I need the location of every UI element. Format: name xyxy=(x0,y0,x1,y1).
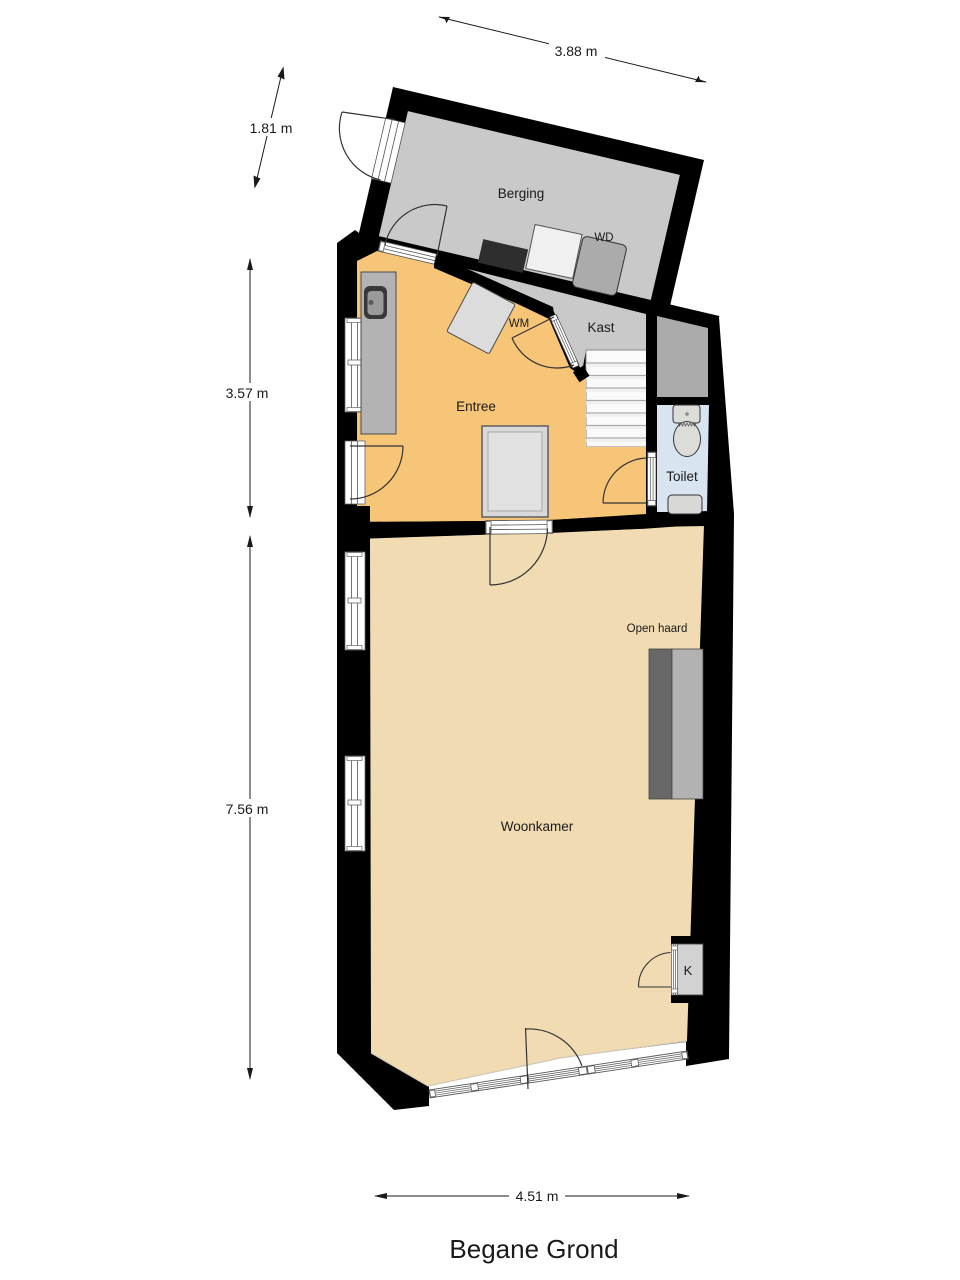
svg-text:Woonkamer: Woonkamer xyxy=(501,819,574,834)
svg-text:Begane Grond: Begane Grond xyxy=(449,1234,618,1264)
svg-text:K: K xyxy=(684,963,693,978)
svg-text:3.57 m: 3.57 m xyxy=(226,385,269,401)
svg-text:WM: WM xyxy=(509,318,529,330)
svg-text:Entree: Entree xyxy=(456,399,496,414)
svg-text:Kast: Kast xyxy=(587,320,614,335)
svg-text:Berging: Berging xyxy=(498,186,545,201)
svg-text:7.56 m: 7.56 m xyxy=(226,801,269,817)
svg-text:3.88 m: 3.88 m xyxy=(555,43,598,59)
svg-text:WD: WD xyxy=(594,232,613,244)
svg-text:4.51 m: 4.51 m xyxy=(516,1188,559,1204)
svg-text:Toilet: Toilet xyxy=(666,469,698,484)
svg-text:1.81 m: 1.81 m xyxy=(250,120,293,136)
svg-text:Open haard: Open haard xyxy=(627,623,688,635)
